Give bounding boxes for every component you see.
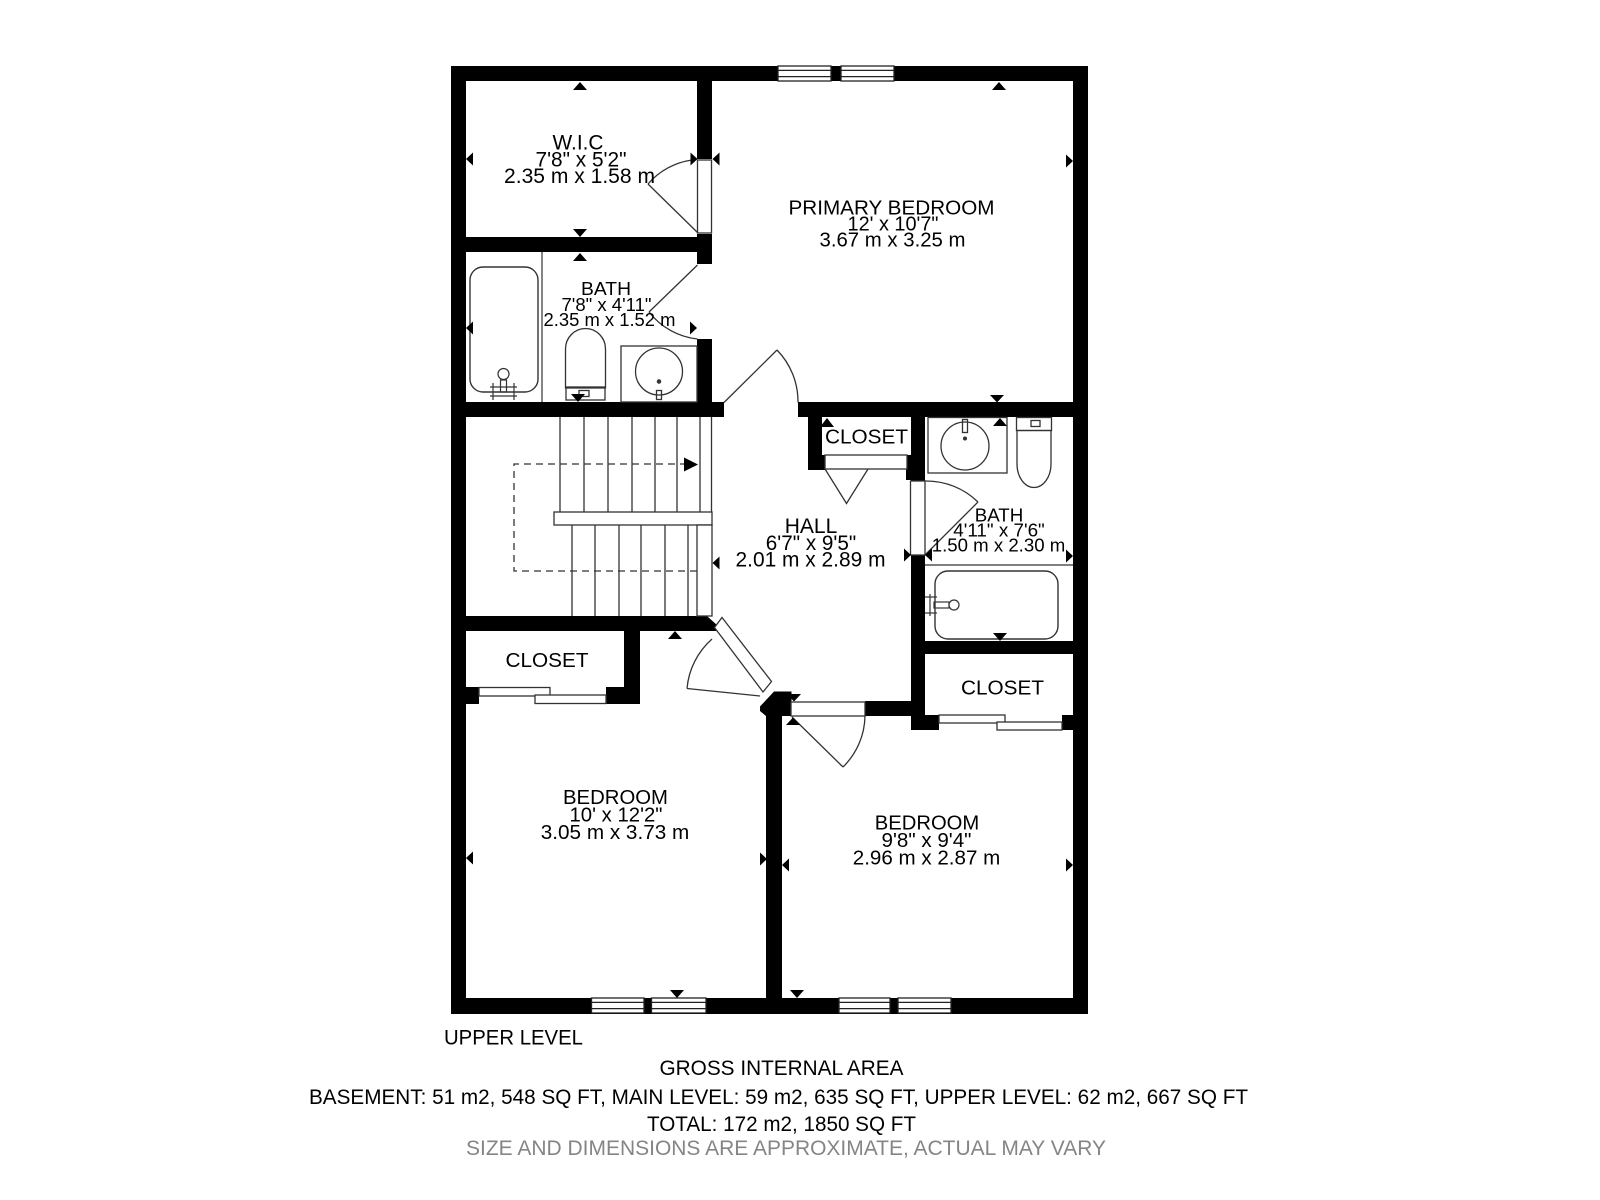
svg-text:CLOSET: CLOSET [961, 677, 1044, 700]
svg-text:CLOSET: CLOSET [825, 426, 908, 449]
svg-text:CLOSET: CLOSET [506, 649, 589, 672]
svg-text:SIZE AND DIMENSIONS ARE APPROX: SIZE AND DIMENSIONS ARE APPROXIMATE, ACT… [466, 1137, 1106, 1160]
svg-text:GROSS INTERNAL AREA: GROSS INTERNAL AREA [660, 1057, 904, 1080]
svg-text:BASEMENT: 51 m2, 548 SQ FT, MA: BASEMENT: 51 m2, 548 SQ FT, MAIN LEVEL: … [309, 1086, 1248, 1109]
svg-text:2.96 m x 2.87 m: 2.96 m x 2.87 m [853, 848, 1001, 870]
svg-text:TOTAL: 172 m2, 1850 SQ FT: TOTAL: 172 m2, 1850 SQ FT [647, 1113, 916, 1136]
svg-text:3.05 m x 3.73 m: 3.05 m x 3.73 m [541, 821, 690, 844]
svg-text:1.50 m x 2.30 m: 1.50 m x 2.30 m [932, 535, 1066, 556]
svg-text:2.01 m x 2.89 m: 2.01 m x 2.89 m [736, 549, 886, 572]
svg-text:2.35 m x 1.58 m: 2.35 m x 1.58 m [504, 165, 655, 188]
svg-text:3.67 m x 3.25 m: 3.67 m x 3.25 m [820, 229, 966, 252]
svg-text:2.35 m x 1.52 m: 2.35 m x 1.52 m [544, 309, 676, 330]
svg-text:UPPER LEVEL: UPPER LEVEL [444, 1027, 583, 1050]
